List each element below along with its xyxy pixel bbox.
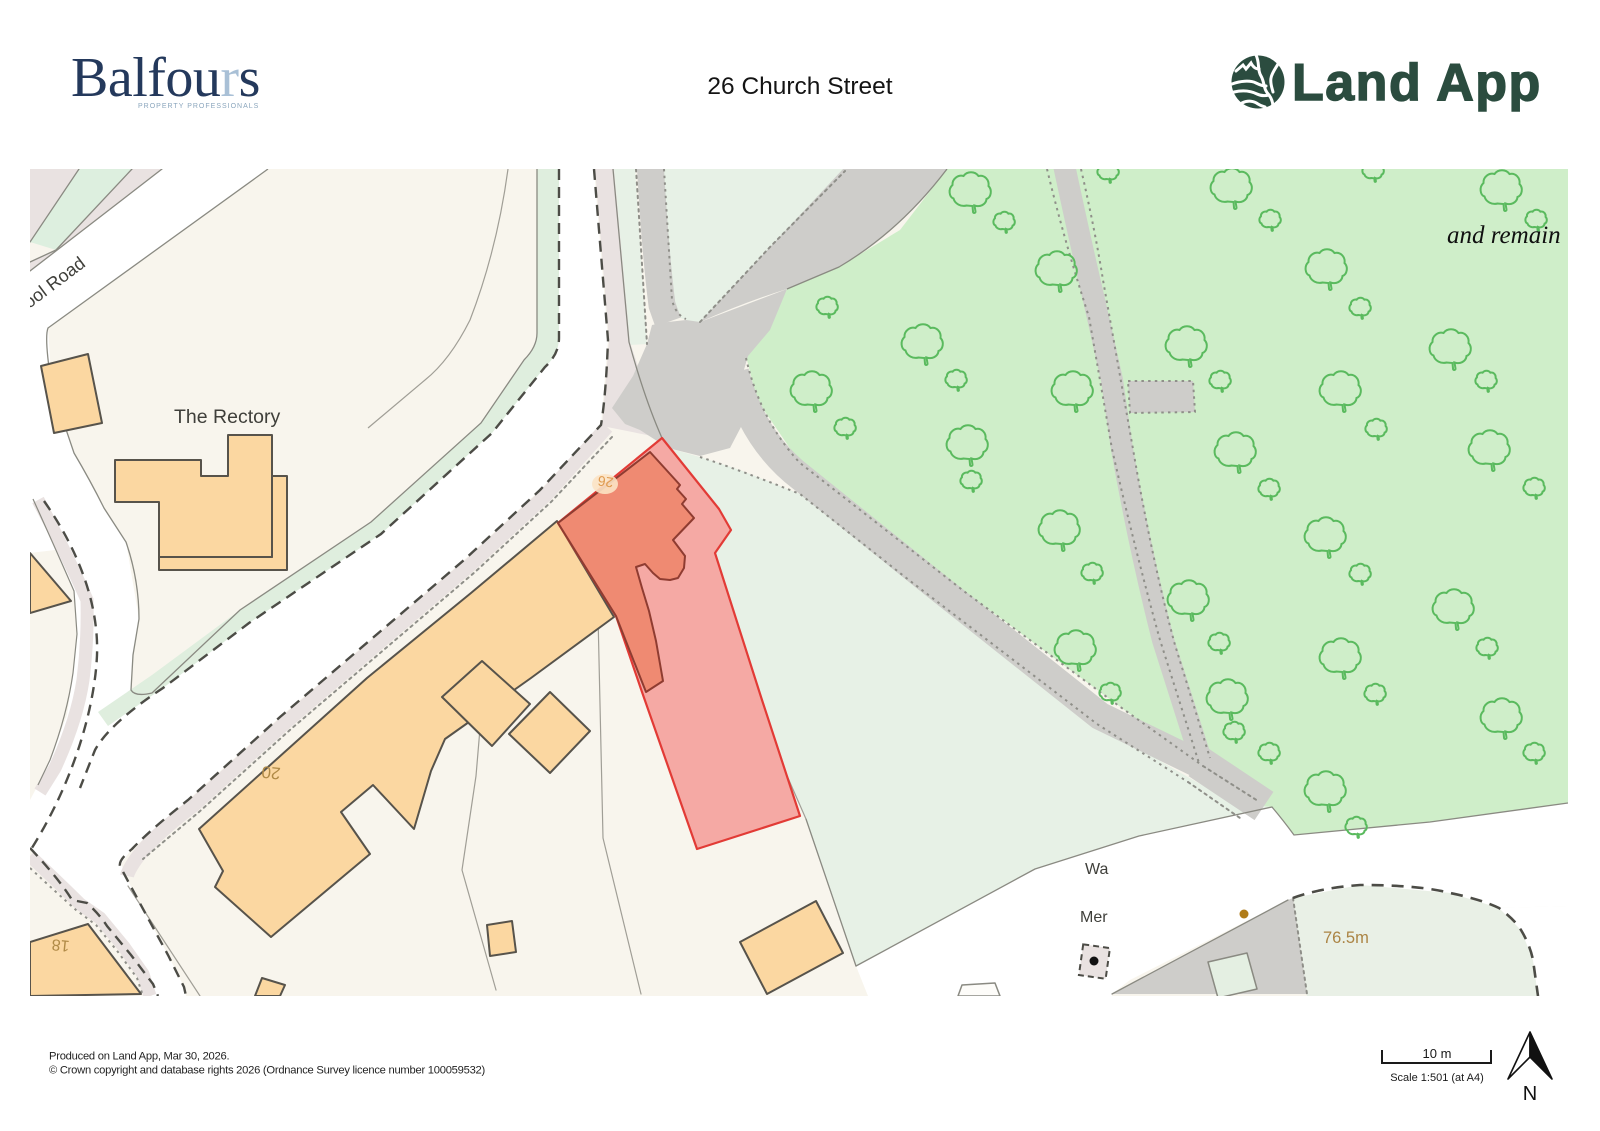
- svg-text:Wa: Wa: [1085, 861, 1109, 878]
- svg-text:N: N: [1523, 1083, 1537, 1105]
- svg-text:10 m: 10 m: [1423, 1046, 1452, 1061]
- svg-text:and remain: and remain: [1447, 222, 1561, 249]
- svg-text:Scale 1:501 (at A4): Scale 1:501 (at A4): [1390, 1072, 1484, 1084]
- svg-text:20: 20: [261, 762, 282, 783]
- svg-text:Mer: Mer: [1080, 909, 1108, 926]
- svg-text:Balfours: Balfours: [71, 47, 260, 109]
- svg-text:18: 18: [51, 935, 71, 954]
- svg-text:Produced on Land App, Mar 30,: Produced on Land App, Mar 30, 2026.: [49, 1051, 229, 1063]
- svg-text:PROPERTY PROFESSIONALS: PROPERTY PROFESSIONALS: [138, 103, 259, 110]
- svg-text:26: 26: [597, 473, 615, 491]
- svg-text:Land App: Land App: [1292, 54, 1542, 112]
- svg-text:26 Church Street: 26 Church Street: [707, 73, 892, 100]
- svg-text:76.5m: 76.5m: [1323, 929, 1369, 947]
- svg-text:© Crown copyright and database: © Crown copyright and database rights 20…: [49, 1065, 486, 1077]
- svg-text:The Rectory: The Rectory: [174, 406, 280, 428]
